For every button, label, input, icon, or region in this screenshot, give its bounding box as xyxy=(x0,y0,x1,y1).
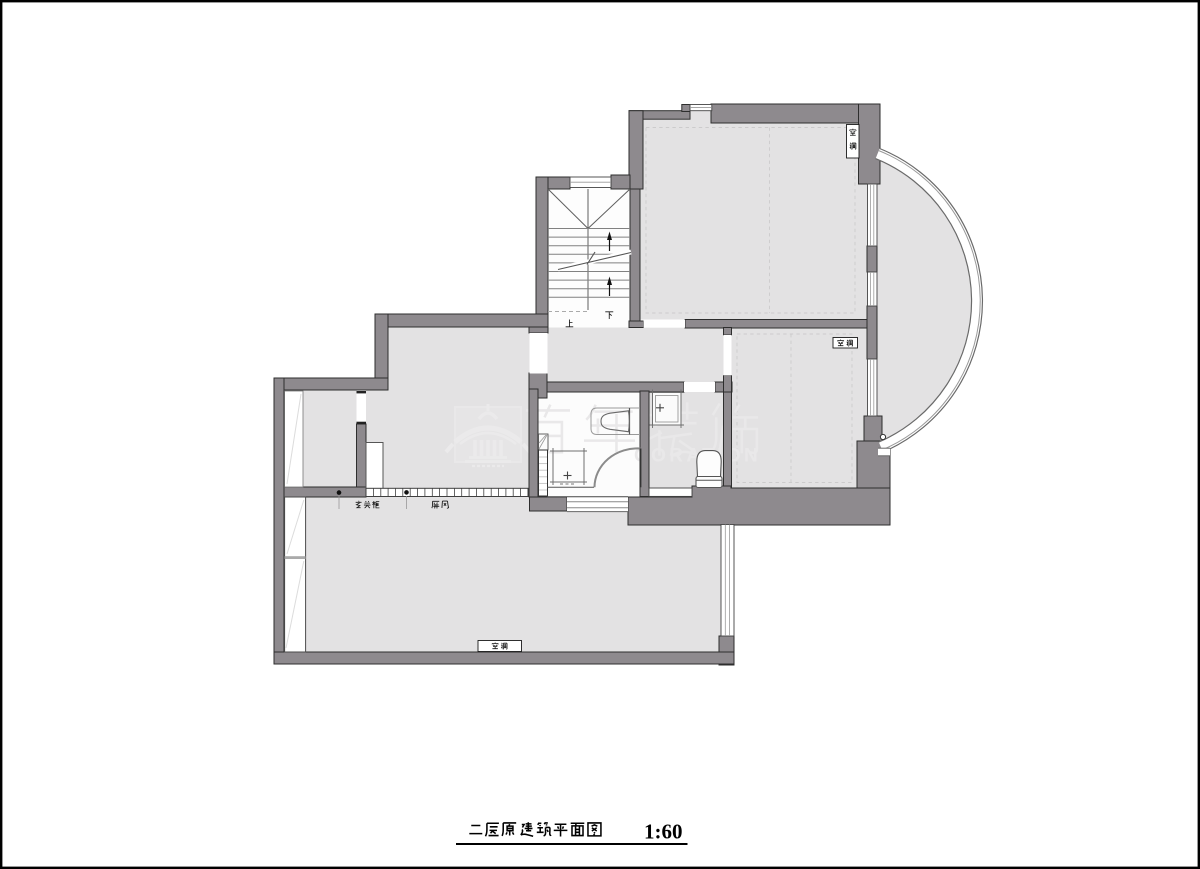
svg-text:1:60: 1:60 xyxy=(644,820,683,844)
